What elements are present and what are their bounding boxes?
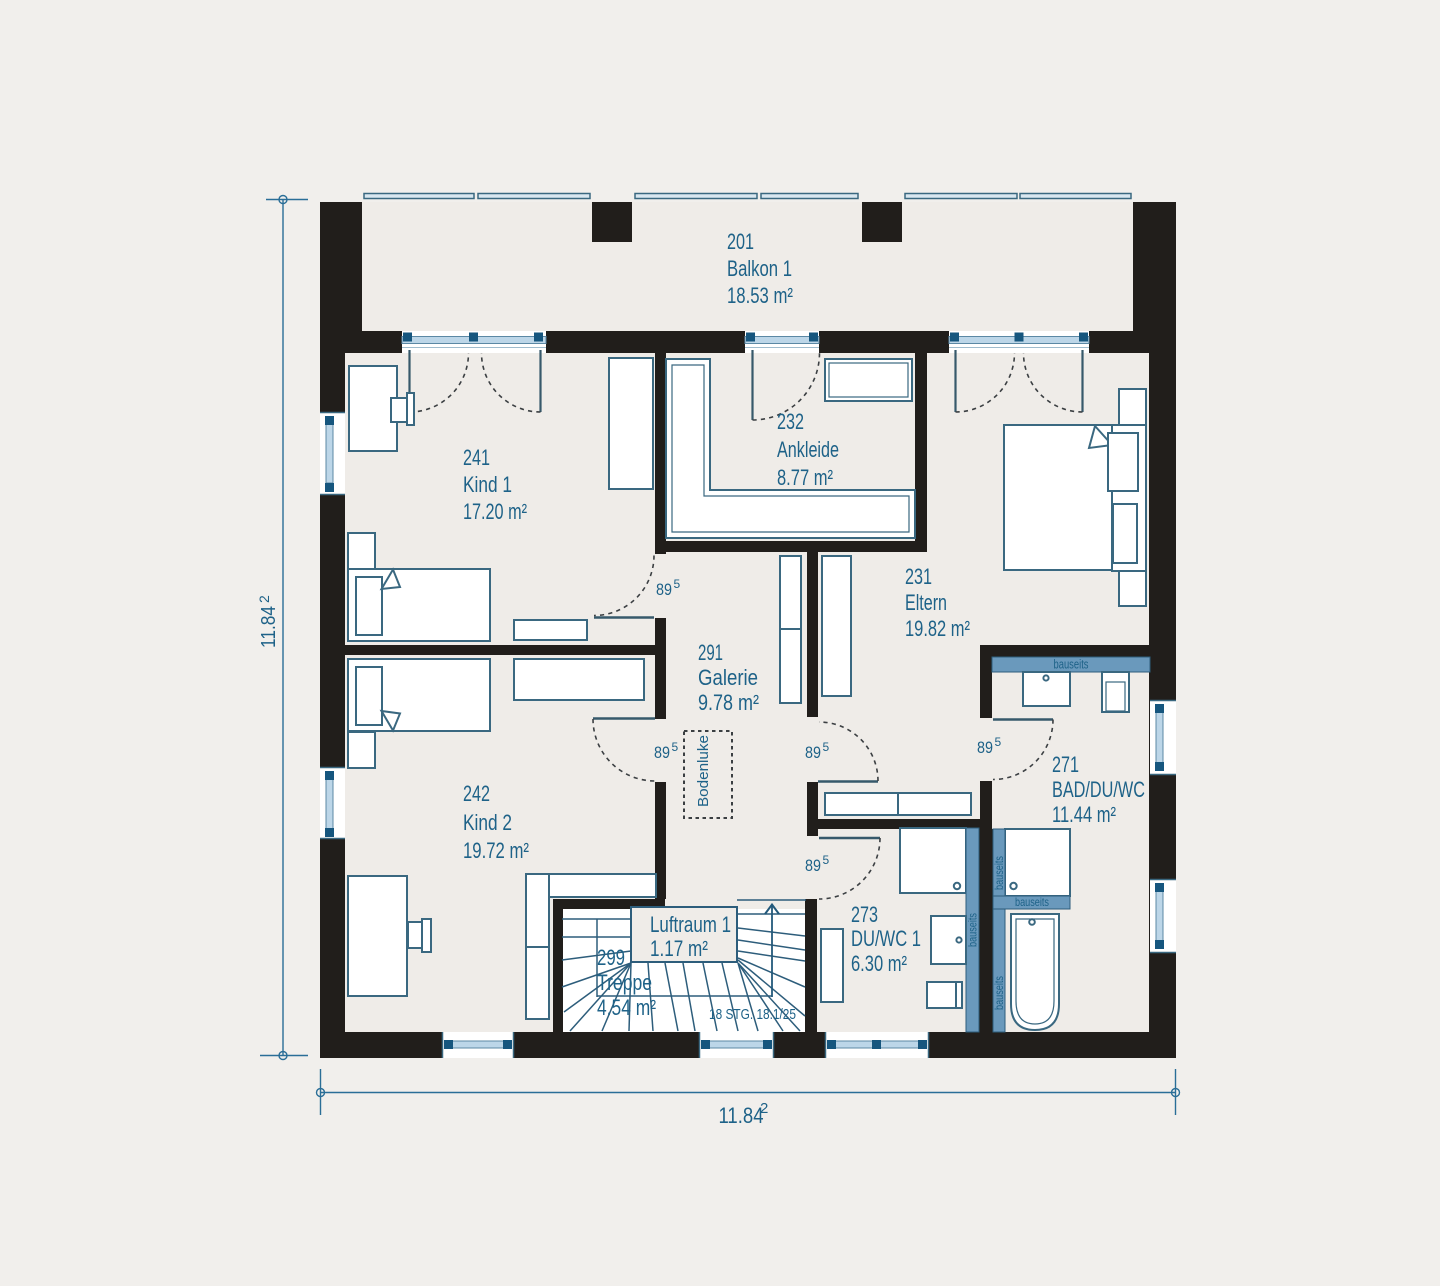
svg-text:Treppe: Treppe	[597, 970, 652, 995]
svg-text:11.84: 11.84	[258, 606, 280, 648]
svg-text:Balkon 1: Balkon 1	[727, 256, 792, 281]
svg-text:Ankleide: Ankleide	[777, 437, 839, 462]
svg-text:19.82 m²: 19.82 m²	[905, 616, 970, 641]
svg-text:11.44 m²: 11.44 m²	[1052, 802, 1116, 827]
svg-text:Eltern: Eltern	[905, 590, 947, 615]
svg-text:bauseits: bauseits	[966, 913, 980, 947]
svg-text:Bodenluke: Bodenluke	[696, 735, 712, 807]
svg-text:1.17 m²: 1.17 m²	[650, 936, 708, 961]
svg-text:BAD/DU/WC: BAD/DU/WC	[1052, 777, 1145, 802]
svg-text:8.77 m²: 8.77 m²	[777, 465, 833, 490]
svg-text:4.54 m²: 4.54 m²	[597, 995, 656, 1020]
svg-text:Kind 1: Kind 1	[463, 472, 512, 497]
svg-text:Galerie: Galerie	[698, 665, 758, 690]
svg-text:2: 2	[256, 595, 272, 603]
svg-text:DU/WC 1: DU/WC 1	[851, 926, 921, 951]
svg-text:89: 89	[805, 743, 821, 762]
svg-text:bauseits: bauseits	[1054, 658, 1089, 672]
svg-text:5: 5	[674, 577, 681, 591]
svg-text:242: 242	[463, 781, 490, 806]
svg-text:18.53 m²: 18.53 m²	[727, 283, 793, 308]
svg-text:231: 231	[905, 564, 932, 589]
svg-text:17.20 m²: 17.20 m²	[463, 499, 527, 524]
svg-text:5: 5	[995, 735, 1002, 749]
svg-text:89: 89	[977, 738, 993, 757]
svg-text:2: 2	[760, 1100, 768, 1117]
svg-text:241: 241	[463, 445, 490, 470]
svg-text:89: 89	[656, 580, 672, 599]
svg-text:19.72 m²: 19.72 m²	[463, 838, 529, 863]
svg-text:5: 5	[823, 853, 830, 867]
svg-text:bauseits: bauseits	[1015, 895, 1049, 909]
svg-text:232: 232	[777, 409, 804, 434]
svg-text:Luftraum 1: Luftraum 1	[650, 912, 731, 937]
svg-text:89: 89	[654, 743, 670, 762]
svg-text:bauseits: bauseits	[992, 856, 1006, 890]
svg-text:291: 291	[698, 640, 723, 665]
svg-text:9.78 m²: 9.78 m²	[698, 690, 759, 715]
svg-text:5: 5	[672, 740, 679, 754]
svg-text:bauseits: bauseits	[992, 976, 1006, 1010]
svg-text:271: 271	[1052, 752, 1079, 777]
svg-text:5: 5	[823, 740, 830, 754]
svg-text:11.84: 11.84	[719, 1103, 764, 1128]
svg-text:273: 273	[851, 902, 878, 927]
svg-text:201: 201	[727, 229, 754, 254]
svg-text:18 STG. 18.1/25: 18 STG. 18.1/25	[709, 1006, 796, 1023]
svg-text:89: 89	[805, 856, 821, 875]
svg-text:299: 299	[597, 945, 625, 970]
svg-text:Kind 2: Kind 2	[463, 810, 512, 835]
svg-text:6.30 m²: 6.30 m²	[851, 951, 907, 976]
